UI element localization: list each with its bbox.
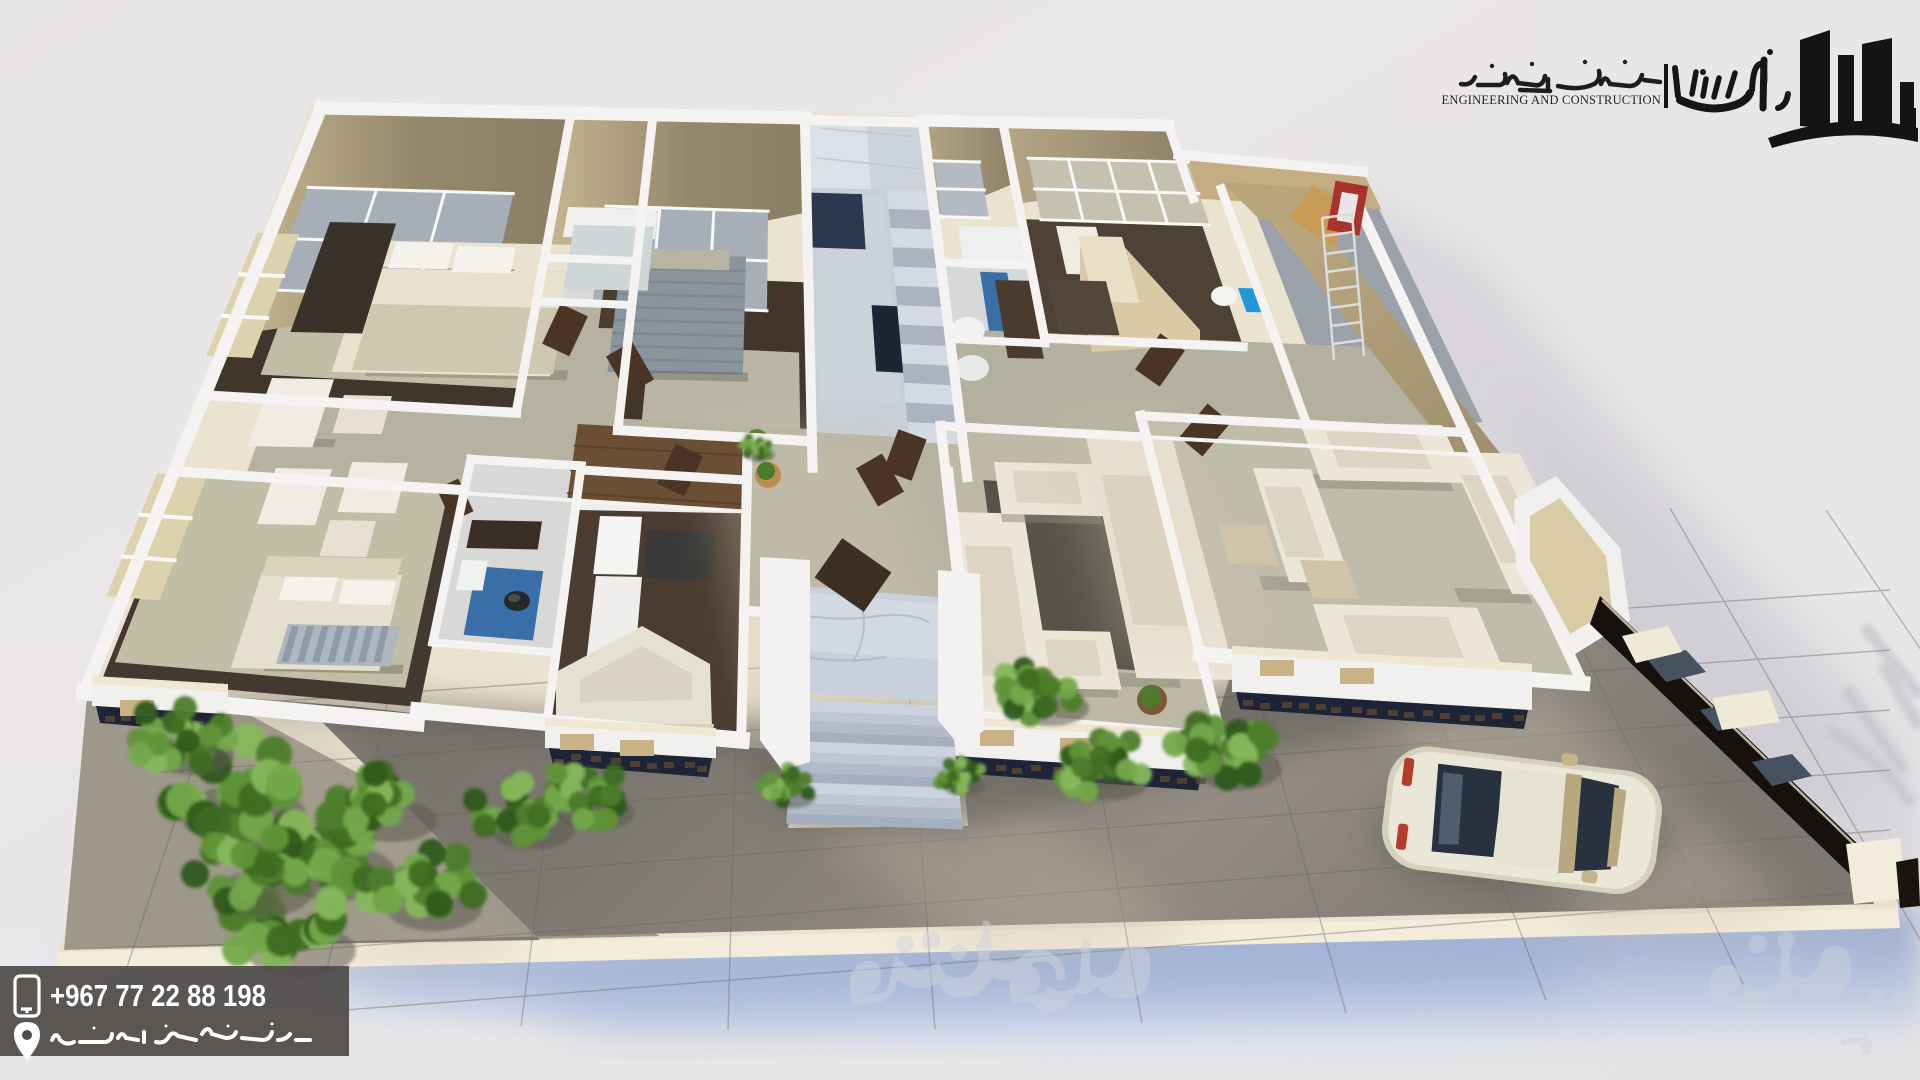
svg-text:ENGINEERING AND CONSTRUCTION: ENGINEERING AND CONSTRUCTION: [1442, 93, 1661, 107]
svg-text:+967 77 22 88 198: +967 77 22 88 198: [50, 978, 266, 1013]
